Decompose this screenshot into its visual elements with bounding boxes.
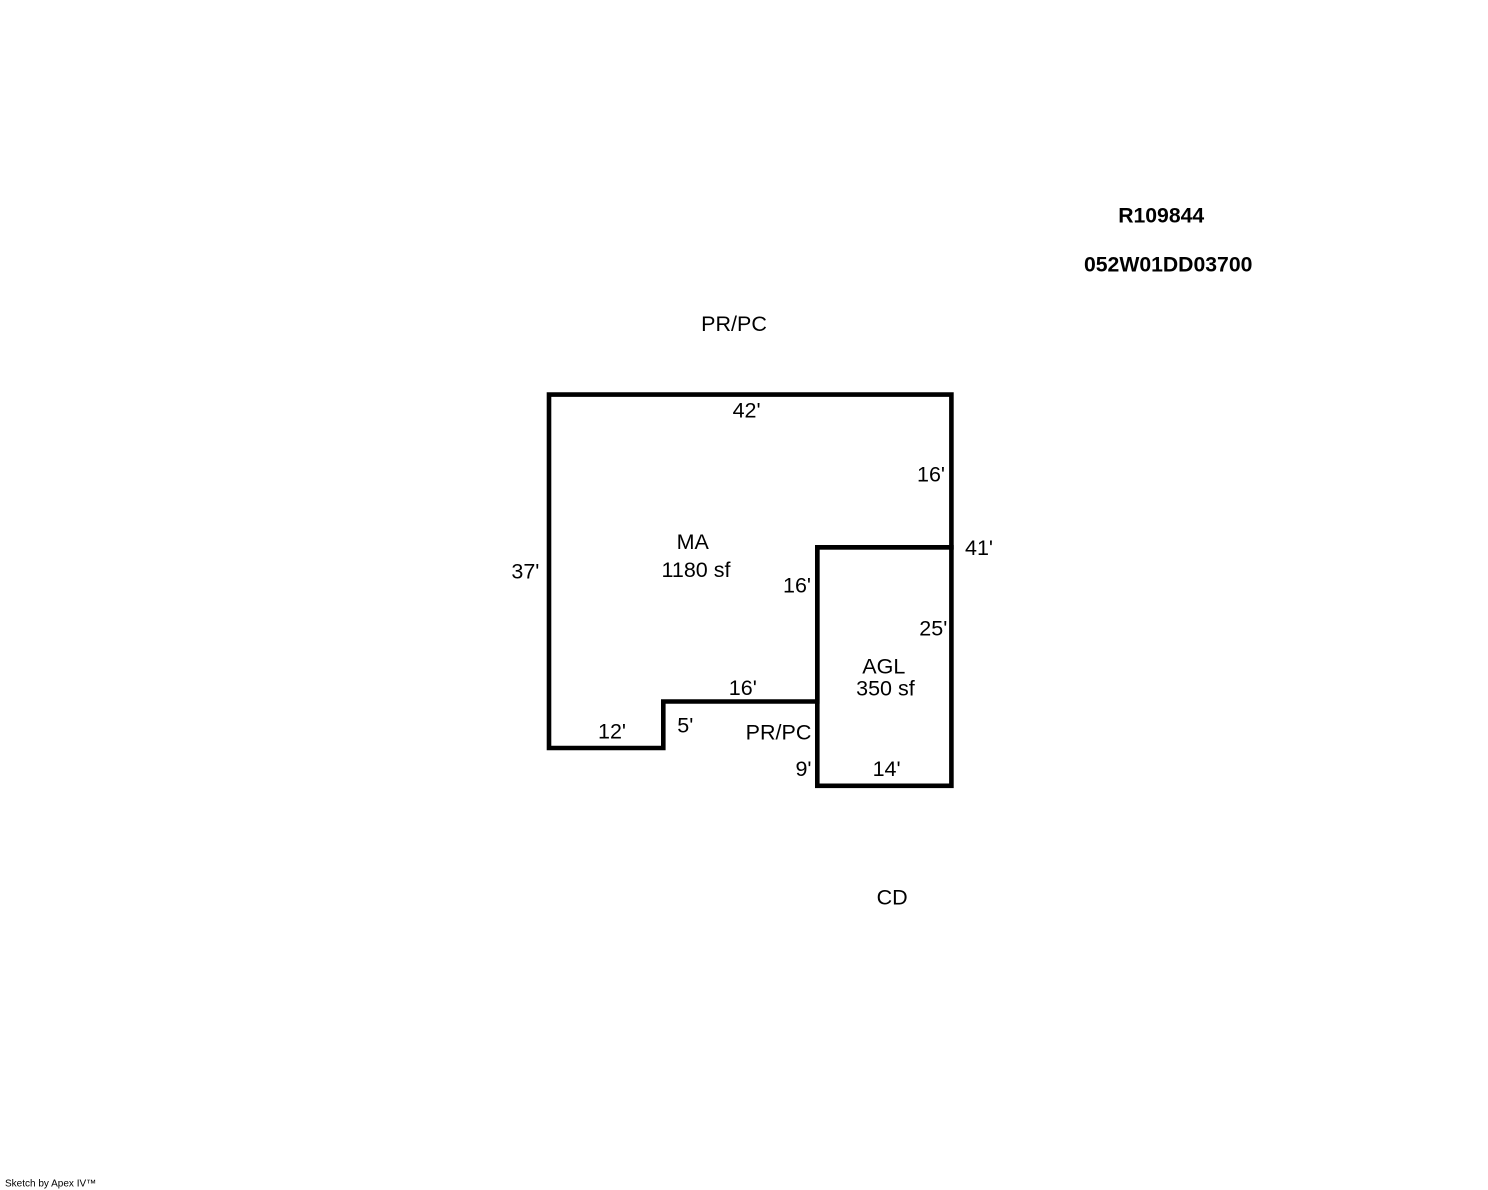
svg-text:41': 41'	[965, 536, 993, 560]
svg-text:052W01DD03700: 052W01DD03700	[1084, 254, 1252, 277]
svg-text:R109844: R109844	[1118, 205, 1204, 228]
svg-text:1180 sf: 1180 sf	[662, 558, 731, 582]
svg-text:9': 9'	[795, 757, 811, 781]
svg-text:12': 12'	[598, 720, 626, 744]
svg-text:350 sf: 350 sf	[856, 676, 915, 700]
svg-text:25': 25'	[919, 617, 947, 641]
svg-text:16': 16'	[783, 573, 811, 597]
svg-text:CD: CD	[877, 886, 908, 910]
svg-text:37': 37'	[511, 560, 539, 584]
svg-text:MA: MA	[677, 530, 710, 554]
svg-text:16': 16'	[917, 462, 945, 486]
svg-text:5': 5'	[677, 713, 693, 737]
svg-text:PR/PC: PR/PC	[746, 721, 812, 745]
svg-text:PR/PC: PR/PC	[701, 312, 767, 336]
svg-text:16': 16'	[729, 676, 757, 700]
svg-text:42': 42'	[733, 398, 761, 422]
svg-text:14': 14'	[873, 757, 901, 781]
svg-text:Sketch by Apex IV™: Sketch by Apex IV™	[5, 1179, 96, 1190]
svg-text:AGL: AGL	[862, 655, 905, 679]
